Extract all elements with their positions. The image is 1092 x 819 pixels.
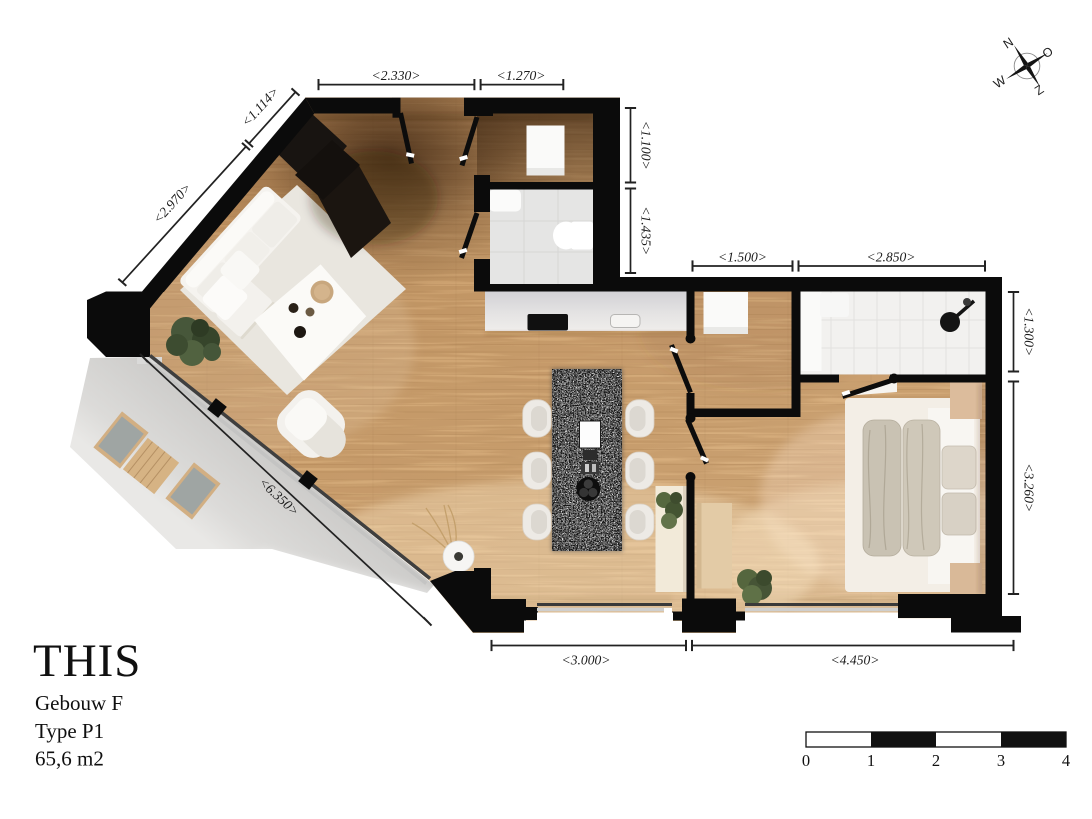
- svg-text:<1.100>: <1.100>: [639, 121, 654, 170]
- svg-text:<3.000>: <3.000>: [562, 653, 611, 668]
- svg-text:Gebouw F: Gebouw F: [35, 691, 123, 715]
- svg-text:1: 1: [867, 751, 875, 770]
- svg-text:<3.260>: <3.260>: [1022, 463, 1037, 512]
- svg-text:0: 0: [802, 751, 810, 770]
- svg-text:<2.330>: <2.330>: [372, 68, 421, 83]
- svg-text:3: 3: [997, 751, 1005, 770]
- svg-text:4: 4: [1062, 751, 1070, 770]
- svg-text:<1.270>: <1.270>: [497, 68, 546, 83]
- svg-text:<1.300>: <1.300>: [1022, 307, 1037, 356]
- svg-text:65,6 m2: 65,6 m2: [35, 747, 104, 771]
- svg-text:<1.435>: <1.435>: [639, 206, 654, 255]
- svg-text:2: 2: [932, 751, 940, 770]
- svg-text:Type P1: Type P1: [35, 719, 104, 743]
- svg-text:<4.450>: <4.450>: [831, 653, 880, 668]
- svg-text:<2.850>: <2.850>: [867, 250, 916, 265]
- svg-text:THIS: THIS: [33, 635, 141, 687]
- svg-text:<1.500>: <1.500>: [718, 250, 767, 265]
